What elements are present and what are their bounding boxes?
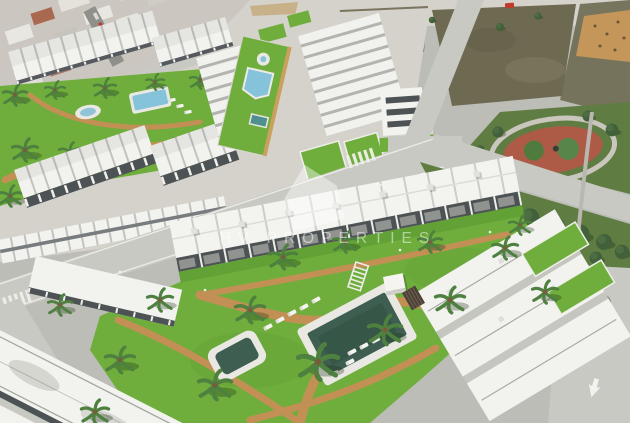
red-vehicle: [505, 3, 514, 9]
sandy-plot: [576, 10, 630, 62]
watermark-text: HV PROPERTIES: [220, 230, 436, 247]
aerial-property-render: HV PROPERTIES: [0, 0, 630, 423]
scene-svg: HV PROPERTIES: [0, 0, 630, 423]
